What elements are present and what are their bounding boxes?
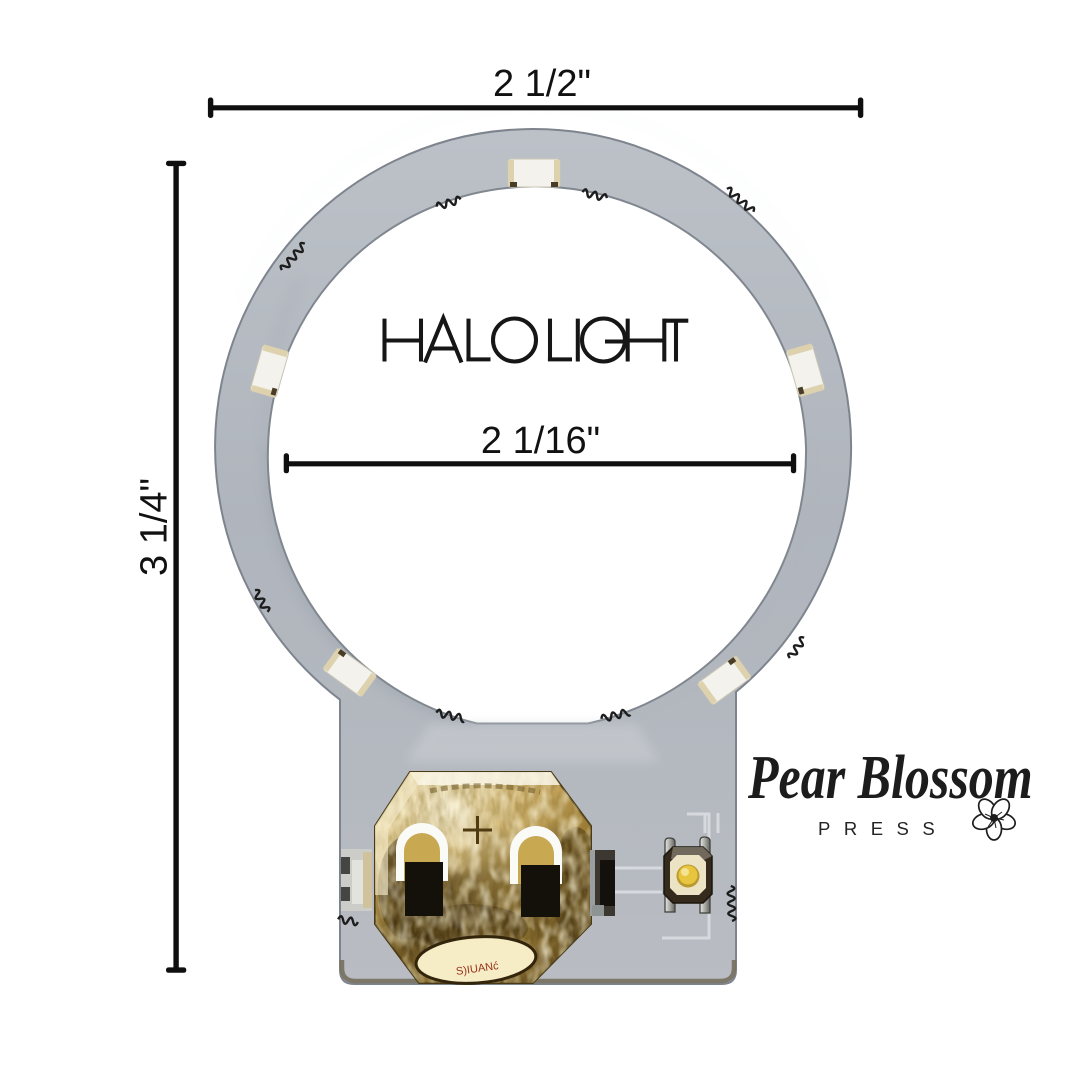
svg-text:PRESS: PRESS xyxy=(818,818,948,839)
svg-text:3 1/4": 3 1/4" xyxy=(134,478,176,576)
svg-text:2 1/2": 2 1/2" xyxy=(493,63,591,105)
svg-text:2 1/16": 2 1/16" xyxy=(481,420,600,462)
